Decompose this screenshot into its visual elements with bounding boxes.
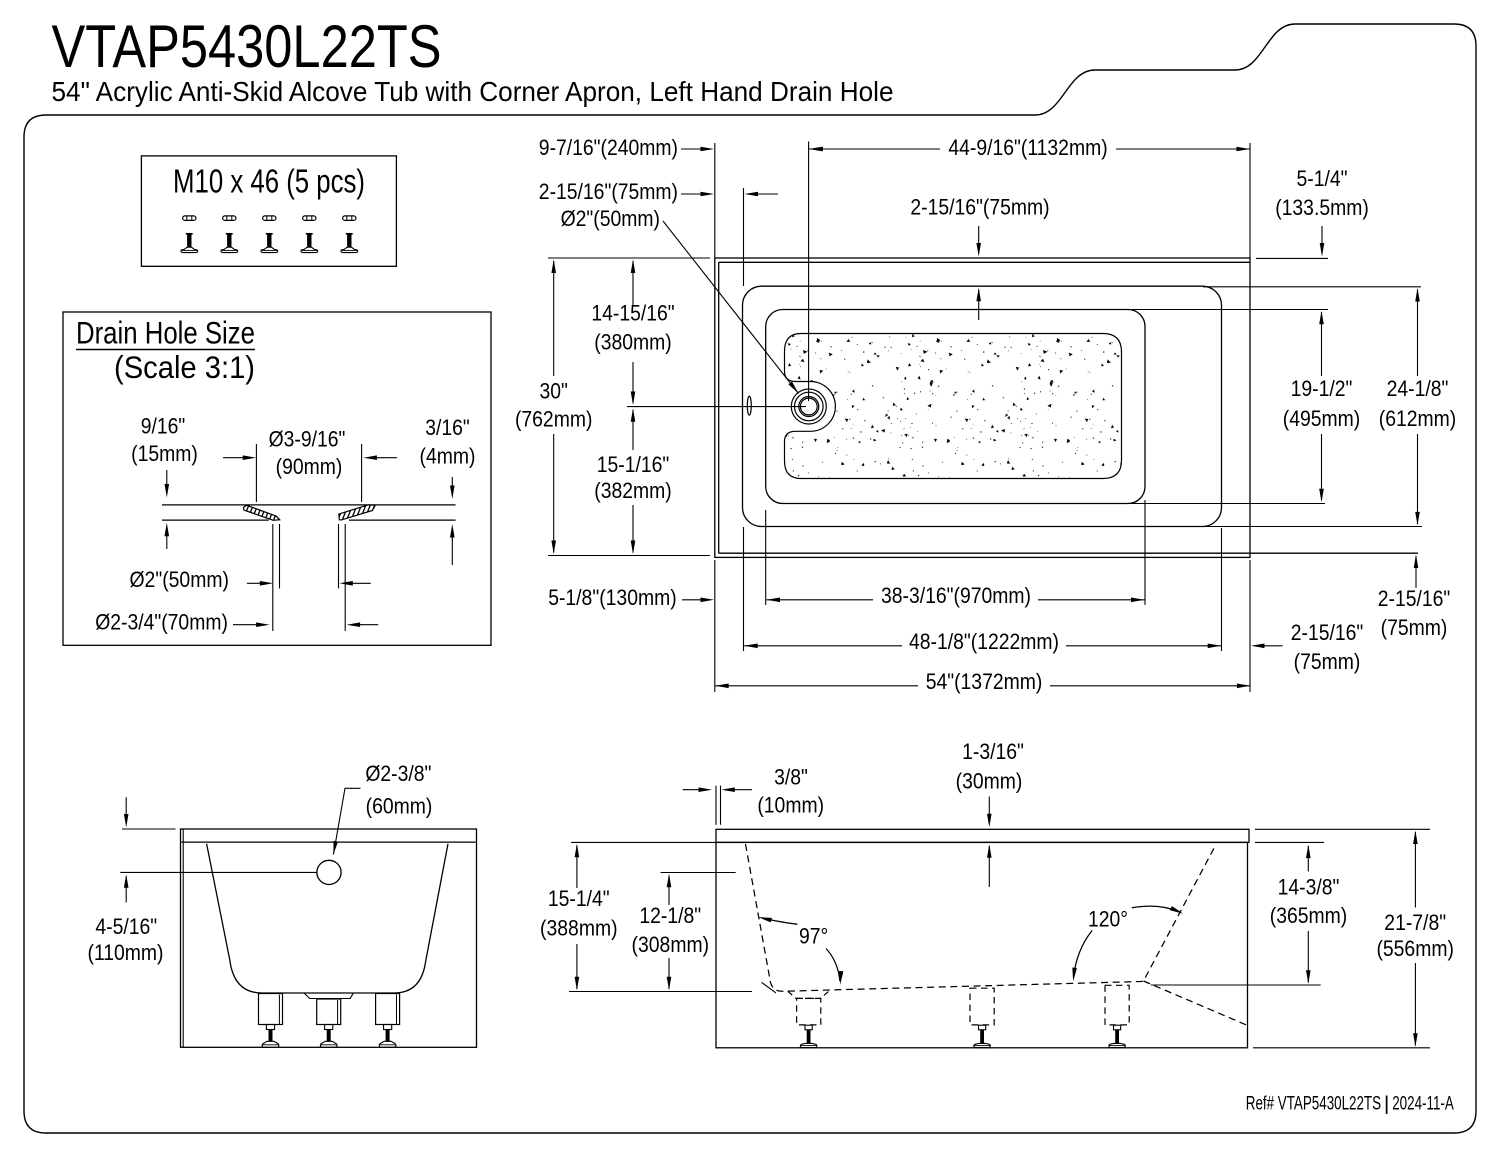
svg-text:2-15/16": 2-15/16" — [1291, 620, 1364, 645]
svg-text:120°: 120° — [1088, 907, 1128, 932]
svg-text:97°: 97° — [799, 924, 828, 949]
svg-text:(382mm): (382mm) — [594, 478, 672, 503]
svg-text:(380mm): (380mm) — [594, 330, 672, 355]
svg-text:(60mm): (60mm) — [366, 794, 433, 819]
svg-text:3/8": 3/8" — [774, 765, 808, 790]
svg-text:VTAP5430L22TS: VTAP5430L22TS — [52, 13, 442, 80]
svg-text:(388mm): (388mm) — [540, 916, 618, 941]
svg-text:(308mm): (308mm) — [632, 932, 710, 957]
svg-text:(365mm): (365mm) — [1270, 903, 1348, 928]
svg-text:2-15/16"(75mm): 2-15/16"(75mm) — [910, 195, 1049, 220]
svg-text:(30mm): (30mm) — [956, 768, 1023, 793]
svg-text:9/16": 9/16" — [141, 414, 186, 439]
svg-text:3/16": 3/16" — [425, 415, 470, 440]
svg-text:9-7/16"(240mm): 9-7/16"(240mm) — [539, 135, 678, 160]
svg-text:M10 x 46 (5 pcs): M10 x 46 (5 pcs) — [173, 163, 365, 200]
svg-text:38-3/16"(970mm): 38-3/16"(970mm) — [881, 583, 1031, 608]
svg-text:(110mm): (110mm) — [88, 940, 164, 965]
svg-text:1-3/16": 1-3/16" — [962, 739, 1024, 764]
svg-text:14-3/8": 14-3/8" — [1278, 875, 1340, 900]
svg-text:(Scale 3:1): (Scale 3:1) — [114, 349, 255, 385]
svg-text:(495mm): (495mm) — [1283, 406, 1361, 431]
svg-text:Drain Hole Size: Drain Hole Size — [76, 314, 255, 350]
svg-text:(612mm): (612mm) — [1379, 406, 1457, 431]
svg-text:(762mm): (762mm) — [515, 407, 593, 432]
svg-text:54" Acrylic Anti-Skid Alcove T: 54" Acrylic Anti-Skid Alcove Tub with Co… — [52, 76, 894, 107]
svg-text:5-1/8"(130mm): 5-1/8"(130mm) — [548, 585, 677, 610]
svg-text:30": 30" — [540, 379, 568, 404]
svg-text:2-15/16"(75mm): 2-15/16"(75mm) — [539, 179, 678, 204]
svg-text:24-1/8": 24-1/8" — [1387, 376, 1449, 401]
svg-text:15-1/16": 15-1/16" — [597, 452, 670, 477]
svg-text:(133.5mm): (133.5mm) — [1275, 195, 1369, 220]
svg-text:12-1/8": 12-1/8" — [639, 903, 701, 928]
svg-text:15-1/4": 15-1/4" — [548, 886, 610, 911]
svg-text:19-1/2": 19-1/2" — [1291, 376, 1353, 401]
svg-text:48-1/8"(1222mm): 48-1/8"(1222mm) — [909, 629, 1059, 654]
svg-text:21-7/8": 21-7/8" — [1384, 910, 1446, 935]
svg-text:Ø2-3/8": Ø2-3/8" — [365, 761, 431, 786]
svg-text:(556mm): (556mm) — [1376, 936, 1454, 961]
svg-text:Ø3-9/16": Ø3-9/16" — [269, 427, 346, 452]
svg-text:5-1/4": 5-1/4" — [1297, 166, 1348, 191]
svg-text:Ref# VTAP5430L22TS | 2024-11-A: Ref# VTAP5430L22TS | 2024-11-A — [1246, 1093, 1454, 1115]
svg-text:(10mm): (10mm) — [757, 792, 824, 817]
svg-text:4-5/16": 4-5/16" — [95, 914, 157, 939]
svg-text:Ø2"(50mm): Ø2"(50mm) — [130, 567, 229, 592]
svg-text:2-15/16": 2-15/16" — [1378, 586, 1451, 611]
svg-text:Ø2-3/4"(70mm): Ø2-3/4"(70mm) — [95, 609, 228, 634]
svg-text:(4mm): (4mm) — [420, 443, 476, 468]
svg-text:(15mm): (15mm) — [131, 441, 198, 466]
svg-text:54"(1372mm): 54"(1372mm) — [926, 669, 1043, 694]
svg-text:44-9/16"(1132mm): 44-9/16"(1132mm) — [948, 135, 1107, 160]
svg-text:(75mm): (75mm) — [1294, 649, 1361, 674]
svg-text:(90mm): (90mm) — [276, 454, 343, 479]
svg-text:(75mm): (75mm) — [1381, 615, 1448, 640]
svg-text:Ø2"(50mm): Ø2"(50mm) — [561, 206, 660, 231]
